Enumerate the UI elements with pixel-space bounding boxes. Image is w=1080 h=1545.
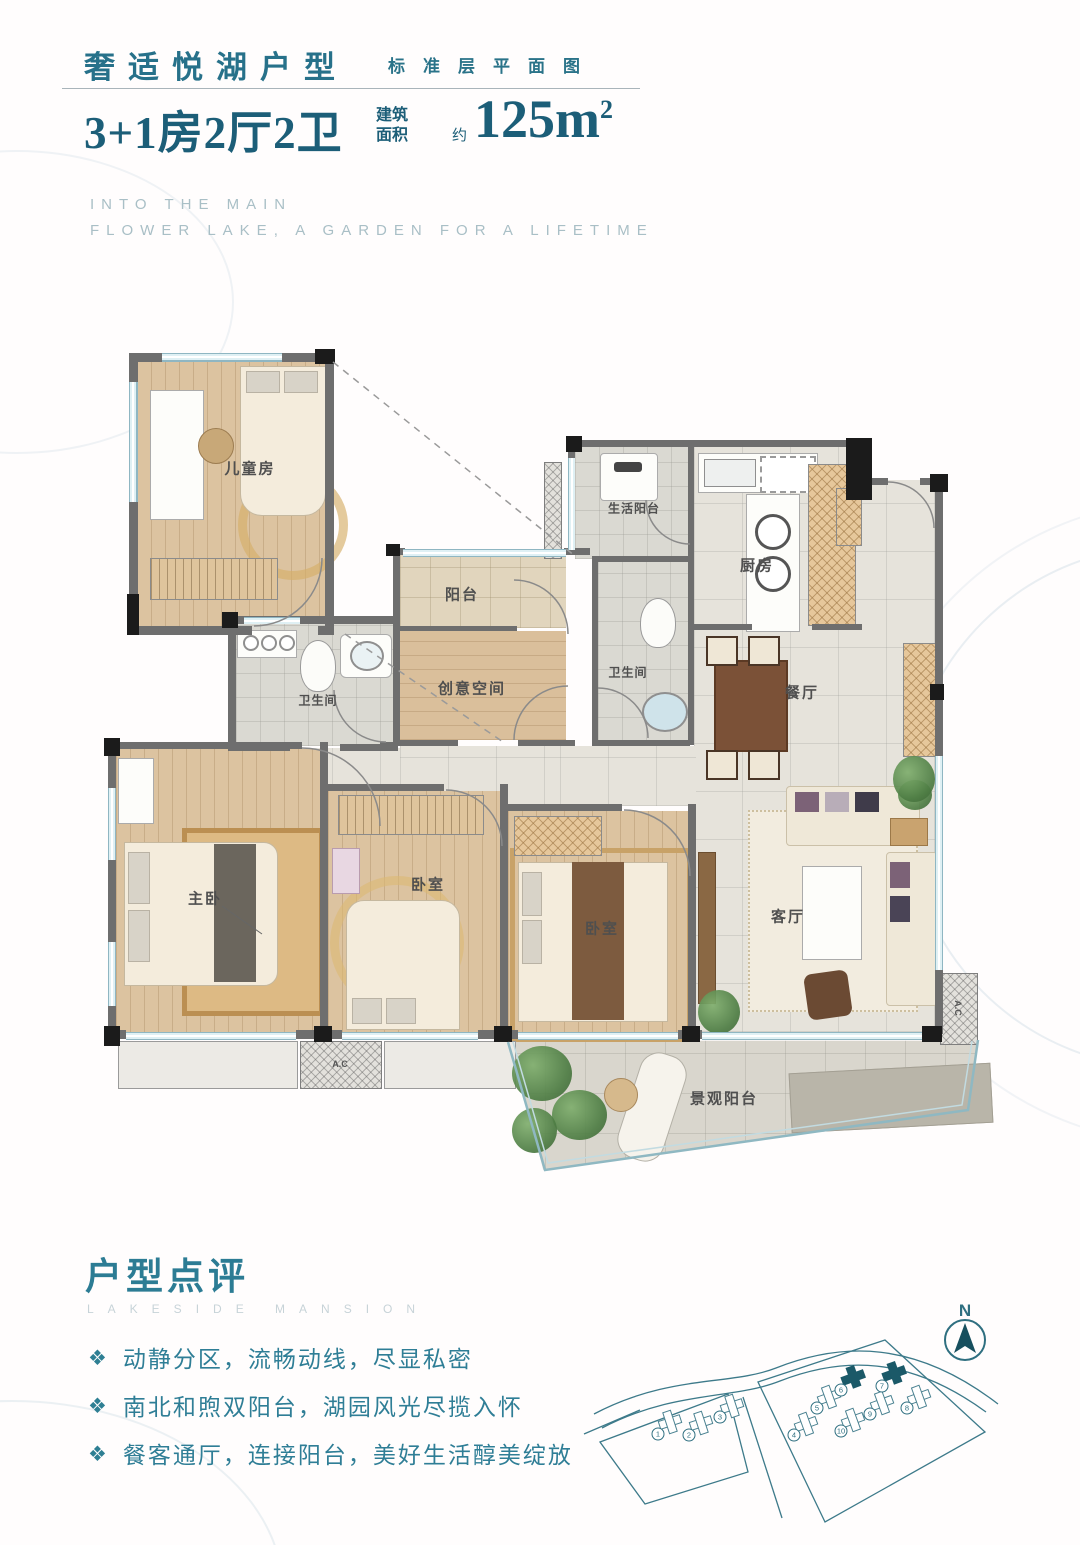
sofa-pillow: [795, 792, 819, 812]
column: [104, 738, 120, 756]
vanity: [332, 848, 360, 894]
room-label-service-balcony: 生活阳台: [608, 500, 660, 517]
area-label: 建筑 面积: [376, 106, 408, 146]
building-number: 1: [656, 1430, 660, 1439]
bed-runner: [214, 844, 256, 982]
pillow: [352, 998, 382, 1024]
wall: [688, 804, 696, 1038]
column: [922, 1026, 942, 1042]
column: [104, 1026, 120, 1046]
window: [108, 788, 116, 860]
room-label-view-balcony: 景观阳台: [690, 1088, 758, 1109]
dining-chair: [748, 750, 780, 780]
dining-chair: [748, 636, 780, 666]
wall: [518, 740, 575, 746]
building-number: 3: [718, 1413, 722, 1422]
sofa-pillow: [855, 792, 879, 812]
column: [930, 684, 944, 700]
wall: [500, 784, 508, 1038]
plan-title: 奢适悦湖户型: [84, 42, 348, 87]
building-number: 4: [792, 1431, 796, 1440]
area-number: 125m: [474, 89, 600, 149]
window: [162, 353, 282, 362]
bed-runner: [572, 862, 624, 1020]
dining-chair: [706, 636, 738, 666]
wall: [812, 624, 862, 630]
column: [314, 1026, 332, 1042]
column: [315, 349, 335, 364]
plant: [512, 1046, 572, 1101]
area-label-line2: 面积: [376, 126, 408, 146]
plant: [698, 990, 740, 1034]
window: [342, 1032, 478, 1040]
dresser: [118, 758, 154, 824]
pillow: [246, 371, 280, 393]
review-bullet-text: 南北和煦双阳台，湖园风光尽揽入怀: [123, 1392, 523, 1422]
plan-subtitle: 标准层平面图: [388, 52, 598, 77]
building-number: 5: [815, 1404, 819, 1413]
column: [222, 612, 238, 628]
diamond-bullet-icon: ❖: [88, 1392, 107, 1422]
pillow: [386, 998, 416, 1024]
window: [702, 1032, 924, 1040]
layout-spec: 3+1房2厅2卫: [84, 96, 343, 161]
sofa-pillow: [890, 862, 910, 888]
site-road: [743, 1397, 782, 1518]
tv-console: [698, 852, 716, 1004]
wall: [325, 353, 334, 635]
english-tagline-2: FLOWER LAKE, A GARDEN FOR A LIFETIME: [90, 222, 654, 239]
wall: [575, 440, 865, 447]
wall: [228, 616, 236, 751]
ac-label: A.C: [332, 1059, 348, 1069]
plant: [512, 1108, 557, 1153]
room-label-balcony: 阳台: [445, 584, 479, 605]
room-label-children: 儿童房: [224, 458, 275, 479]
wardrobe: [514, 816, 602, 856]
planter-ledge: [118, 1041, 298, 1089]
review-bullet: ❖ 餐客通厅，连接阳台，美好生活醇美绽放: [88, 1440, 573, 1470]
window: [108, 942, 116, 1006]
exercise-mat: [789, 1063, 994, 1133]
balcony-floor: [400, 555, 566, 628]
room-label-bathroom-right: 卫生间: [608, 664, 647, 681]
wall: [690, 624, 752, 630]
wall: [393, 548, 400, 746]
sofa-pillow: [825, 792, 849, 812]
armchair: [803, 969, 853, 1021]
compass-needle-icon: [954, 1323, 976, 1353]
pillow: [522, 920, 542, 964]
review-title: 户型点评: [85, 1246, 249, 1300]
inset-link-line: [333, 362, 575, 556]
english-tagline-1: INTO THE MAIN: [90, 196, 292, 213]
building-number: 10: [837, 1427, 845, 1436]
washing-machine: [600, 453, 658, 501]
toilet: [300, 640, 336, 692]
building-number: 8: [905, 1404, 909, 1413]
column: [127, 594, 139, 635]
hallway-floor: [560, 746, 696, 806]
wall: [110, 742, 302, 749]
sink-bowl: [350, 641, 384, 671]
window: [403, 549, 566, 557]
dining-chair: [706, 750, 738, 780]
stove-burner: [755, 514, 791, 550]
column: [682, 1026, 700, 1042]
room-label-master: 主卧: [188, 888, 222, 909]
ac-label: A.C: [953, 1000, 963, 1016]
window: [935, 756, 943, 970]
review-watermark: LAKESIDE MANSION: [87, 1302, 429, 1316]
wall: [318, 626, 330, 635]
wall: [395, 626, 517, 631]
ac-platform: [544, 462, 562, 559]
area-superscript: 2: [600, 95, 613, 124]
review-bullet-text: 动静分区，流畅动线，尽显私密: [123, 1344, 473, 1374]
window: [568, 458, 575, 550]
window: [518, 1032, 678, 1040]
wall: [592, 556, 598, 746]
pillow: [522, 872, 542, 916]
column: [494, 1026, 512, 1042]
room-label-creative: 创意空间: [438, 678, 506, 699]
basin: [279, 635, 295, 651]
desk: [150, 390, 204, 520]
pedestal-sink: [642, 692, 688, 732]
dining-table: [714, 660, 788, 752]
room-label-bedroom-right: 卧室: [585, 918, 619, 939]
building-number: 7: [880, 1382, 884, 1391]
poster-page: 奢适悦湖户型 标准层平面图 3+1房2厅2卫 建筑 面积 约 125m2 INT…: [0, 0, 1080, 1545]
coffee-table: [802, 866, 862, 960]
building-number: 2: [687, 1431, 691, 1440]
pillow: [284, 371, 318, 393]
column: [930, 474, 948, 492]
wall: [596, 740, 690, 746]
pillow: [128, 852, 150, 904]
toilet: [640, 598, 676, 648]
wall: [326, 784, 444, 791]
room-label-kitchen: 厨房: [740, 555, 774, 576]
wall: [398, 740, 458, 746]
window: [244, 617, 300, 624]
plant: [893, 756, 935, 802]
dining-cabinet: [903, 643, 939, 757]
area-label-line1: 建筑: [376, 106, 408, 126]
room-label-living: 客厅: [771, 906, 805, 927]
window: [129, 382, 138, 502]
column: [566, 436, 582, 452]
room-label-dining: 餐厅: [785, 682, 819, 703]
diamond-bullet-icon: ❖: [88, 1344, 107, 1374]
kitchen-sink: [704, 459, 756, 487]
area-value: 125m2: [474, 88, 613, 150]
column: [386, 544, 400, 556]
plant: [552, 1090, 607, 1140]
room-label-bathroom-left: 卫生间: [298, 692, 337, 709]
review-bullet: ❖ 南北和煦双阳台，湖园风光尽揽入怀: [88, 1392, 523, 1422]
review-bullet-text: 餐客通厅，连接阳台，美好生活醇美绽放: [123, 1440, 573, 1470]
column: [846, 438, 872, 500]
wardrobe: [150, 558, 278, 600]
area-approx: 约: [452, 124, 467, 145]
building-number: 6: [839, 1386, 843, 1395]
wall: [504, 804, 622, 811]
planter-ledge: [384, 1041, 516, 1089]
sofa-pillow: [890, 896, 910, 922]
wardrobe: [338, 795, 484, 835]
site-map: N 1 2 3 4 5 6 7 8 9 10: [580, 1282, 1040, 1540]
diamond-bullet-icon: ❖: [88, 1440, 107, 1470]
basin: [261, 635, 277, 651]
basin: [243, 635, 259, 651]
building-number: 9: [868, 1410, 872, 1419]
compass-label: N: [959, 1301, 971, 1320]
washing-machine-door: [614, 462, 642, 472]
pillow: [128, 910, 150, 962]
round-table: [604, 1078, 638, 1112]
wall: [592, 556, 692, 562]
window: [126, 1032, 296, 1040]
side-table: [890, 818, 928, 846]
wall: [688, 445, 694, 745]
review-bullet: ❖ 动静分区，流畅动线，尽显私密: [88, 1344, 473, 1374]
wall: [320, 742, 328, 1038]
room-label-bedroom-middle: 卧室: [411, 874, 445, 895]
